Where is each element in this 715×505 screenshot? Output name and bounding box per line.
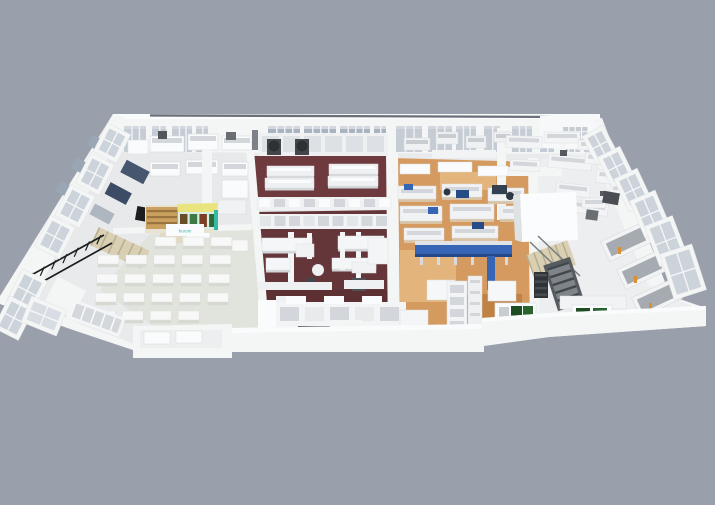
svg-text:hurom: hurom — [179, 229, 192, 234]
